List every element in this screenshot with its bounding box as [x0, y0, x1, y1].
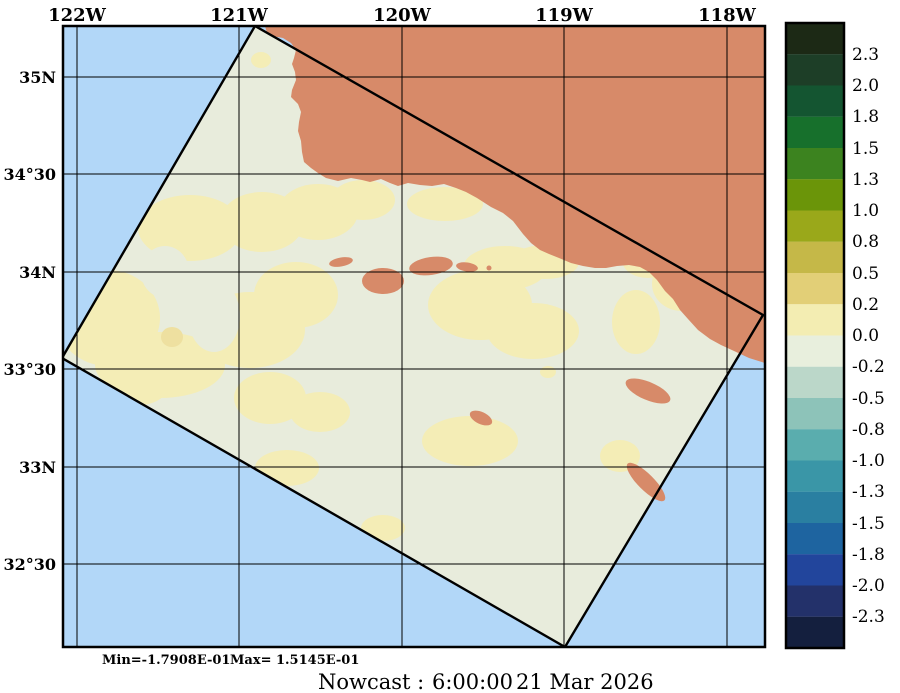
caption-time: 6:00:00 [432, 670, 513, 693]
colorbar-tick-label: 1.3 [852, 170, 879, 190]
colorbar: 2.3 2.0 1.8 1.5 1.3 1.0 0.8 0.5 0.2 0.0 … [786, 23, 885, 648]
lat-tick-label: 32°30 [3, 555, 56, 574]
max-stat: Max= 1.5145E-01 [230, 653, 359, 668]
colorbar-segment [786, 242, 844, 273]
lon-tick-label: 119W [535, 5, 594, 26]
caption: Nowcast : 6:00:00 21 Mar 2026 [318, 670, 654, 693]
map-plot: 122W 121W 120W 119W 118W 35N 34°30 34N 3… [0, 0, 900, 693]
colorbar-segment [786, 211, 844, 242]
colorbar-segment [786, 367, 844, 398]
colorbar-segment [786, 148, 844, 179]
lat-tick-label: 35N [19, 68, 56, 87]
colorbar-segment [786, 273, 844, 304]
anomaly-dot [161, 327, 183, 347]
lat-tick-label: 33°30 [3, 360, 56, 379]
colorbar-tick-label: 0.5 [852, 264, 879, 284]
colorbar-segment [786, 461, 844, 492]
colorbar-tick-label: -2.0 [852, 576, 885, 596]
colorbar-tick-label: 2.0 [852, 76, 879, 96]
lat-tick-label: 34N [19, 263, 56, 282]
colorbar-segment [786, 523, 844, 554]
caption-label: Nowcast : [318, 670, 424, 693]
colorbar-tick-label: -2.3 [852, 607, 885, 627]
colorbar-tick-label: -1.5 [852, 514, 885, 534]
colorbar-tick-label: -0.8 [852, 420, 885, 440]
colorbar-segment [786, 86, 844, 117]
colorbar-tick-label: -0.2 [852, 357, 885, 377]
lon-tick-label: 120W [373, 5, 432, 26]
colorbar-segment [786, 179, 844, 210]
colorbar-segment [786, 398, 844, 429]
colorbar-tick-label: 1.5 [852, 139, 879, 159]
min-stat: Min=-1.7908E-01 [102, 653, 230, 668]
colorbar-segment [786, 54, 844, 85]
colorbar-segment [786, 117, 844, 148]
colorbar-segment [786, 336, 844, 367]
colorbar-tick-label: 0.8 [852, 232, 879, 252]
colorbar-tick-label: -1.3 [852, 482, 885, 502]
lon-tick-label: 118W [698, 5, 757, 26]
colorbar-scale: 2.3 2.0 1.8 1.5 1.3 1.0 0.8 0.5 0.2 0.0 … [852, 45, 885, 627]
island-anacapa-east [487, 266, 492, 271]
colorbar-tick-label: -0.5 [852, 389, 885, 409]
latitude-axis: 35N 34°30 34N 33°30 33N 32°30 [3, 68, 56, 574]
caption-date: 21 Mar 2026 [516, 670, 654, 693]
colorbar-segment [786, 554, 844, 585]
colorbar-tick-label: 1.0 [852, 201, 879, 221]
lat-tick-label: 34°30 [3, 165, 56, 184]
colorbar-tick-label: -1.0 [852, 451, 885, 471]
lon-tick-label: 122W [48, 5, 107, 26]
lat-tick-label: 33N [19, 458, 56, 477]
colorbar-segment [786, 617, 844, 648]
colorbar-segment [786, 492, 844, 523]
colorbar-tick-label: -1.8 [852, 545, 885, 565]
colorbar-tick-label: 0.2 [852, 295, 879, 315]
colorbar-segment [786, 429, 844, 460]
lon-tick-label: 121W [210, 5, 269, 26]
colorbar-tick-label: 1.8 [852, 107, 879, 127]
colorbar-segment [786, 304, 844, 335]
colorbar-segment [786, 23, 844, 54]
nowcast-figure: 122W 121W 120W 119W 118W 35N 34°30 34N 3… [0, 0, 900, 693]
colorbar-tick-label: 2.3 [852, 45, 879, 65]
longitude-axis: 122W 121W 120W 119W 118W [48, 5, 757, 26]
colorbar-segment [786, 586, 844, 617]
colorbar-tick-label: 0.0 [852, 326, 879, 346]
